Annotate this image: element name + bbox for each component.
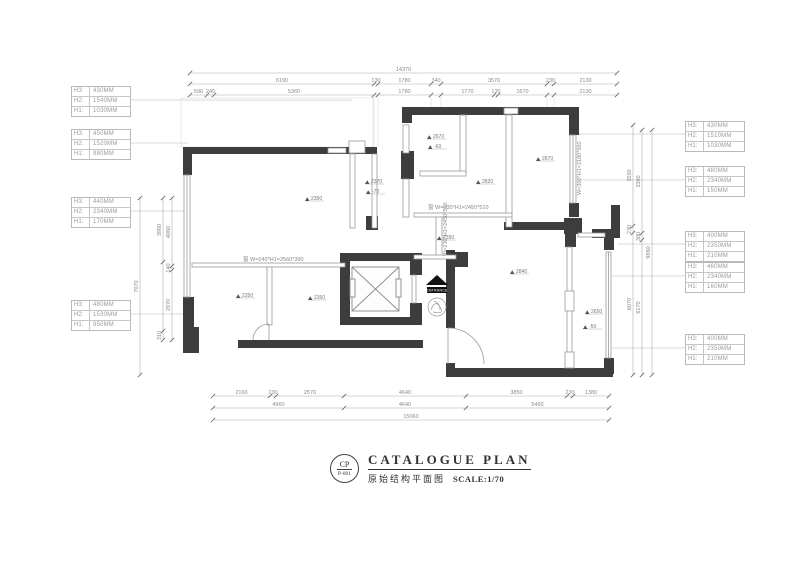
dim-label: 3850 — [510, 390, 522, 396]
dim-label: 130 — [371, 78, 380, 84]
height-row: H3:440MM — [72, 198, 130, 208]
spot-height-marker: 2840 — [510, 269, 529, 275]
window-spec-2: 窗 W=240*H1=2560*390 — [243, 255, 304, 263]
dim-label: 1780 — [398, 78, 410, 84]
height-row: H3:450MM — [72, 130, 130, 140]
dim-chain: 14370 — [188, 67, 619, 75]
spot-height-value: -60 — [434, 144, 441, 150]
spot-height-value: 2370 — [371, 179, 382, 185]
dim-label: 4960 — [272, 402, 284, 408]
spot-height-marker: -50 — [583, 324, 602, 330]
height-row: H1:1030MM — [72, 107, 130, 116]
dim-label: 15060 — [403, 414, 418, 420]
drawing-title-cn: 原始结构平面图 — [368, 472, 445, 485]
dim-label: 590 — [194, 89, 203, 95]
spot-height-marker: -70 — [366, 189, 385, 195]
dim-label: 3570 — [488, 78, 500, 84]
height-table-left-2: H3:450MM H2:1520MM H1:980MM — [71, 129, 131, 160]
dim-label: 230 — [565, 390, 574, 396]
height-table-left-4: H3:480MM H2:1530MM H1:950MM — [71, 300, 131, 331]
height-row: H3:400MM — [686, 335, 744, 345]
height-row: H2:2340MM — [686, 177, 744, 187]
height-row: H2:1520MM — [72, 140, 130, 150]
dim-label: 140 — [166, 263, 172, 272]
entrance-label: ENTRANCE — [426, 289, 447, 293]
height-row: H3:400MM — [686, 232, 744, 242]
dim-label: 1380 — [585, 390, 597, 396]
dim-label: 4060 — [166, 226, 172, 238]
title-block: CP P-001 CATALOGUE PLAN 原始结构平面图 SCALE:1/… — [330, 452, 531, 485]
dim-chain: 40601402870 — [166, 196, 174, 342]
drawing-scale: SCALE:1/70 — [453, 474, 504, 484]
spot-height-value: -50 — [589, 324, 596, 330]
dim-label: 2160 — [235, 390, 247, 396]
dim-label: 6190 — [276, 78, 288, 84]
height-row: H1:160MM — [686, 283, 744, 292]
height-row: H1:210MM — [686, 252, 744, 261]
drawing-canvas: ENTRANCE 窗 W=230*H1=2450*510 窗 W=240*H1=… — [0, 0, 800, 565]
spot-height-marker: 2350 — [236, 293, 255, 299]
spot-height-value: 2670 — [542, 156, 553, 162]
spot-height-marker: 2350 — [305, 196, 324, 202]
dim-label: 3960 — [157, 224, 163, 236]
entrance-arrow-icon — [426, 275, 448, 285]
dim-label: 300 — [636, 232, 642, 241]
dim-chain: 21602302570464038502301380 — [211, 390, 611, 398]
dim-chain: 35502306070 — [627, 123, 635, 377]
spot-height-value: 2820 — [482, 179, 493, 185]
entrance-marker: ENTRANCE — [426, 275, 448, 316]
spot-height-marker: 2820 — [476, 179, 495, 185]
height-table-left-1: H3:430MM H2:1540MM H1:1030MM — [71, 86, 131, 117]
height-row: H2:1540MM — [72, 97, 130, 107]
dim-label: 230 — [268, 390, 277, 396]
dim-label: 5360 — [288, 89, 300, 95]
spot-height-value: 2650 — [591, 309, 602, 315]
dim-label: 1670 — [516, 89, 528, 95]
stamp-code: CP — [337, 460, 353, 470]
spot-height-marker: 2650 — [585, 309, 604, 315]
dim-label: 240 — [206, 89, 215, 95]
spot-height-value: 2350 — [443, 235, 454, 241]
dim-label: 2570 — [304, 390, 316, 396]
height-row: H3:480MM — [72, 301, 130, 311]
spot-height-value: -70 — [372, 189, 379, 195]
dim-label: 4640 — [399, 390, 411, 396]
height-row: H2:2350MM — [686, 242, 744, 252]
height-row: H3:480MM — [686, 167, 744, 177]
height-row: H1:980MM — [72, 150, 130, 159]
spot-height-value: 2350 — [314, 295, 325, 301]
dim-label: 5460 — [531, 402, 543, 408]
dim-label: 7070 — [134, 280, 140, 292]
dim-label: 340 — [431, 78, 440, 84]
height-table-right-4: H3:460MM H2:2340MM H1:160MM — [685, 262, 745, 293]
dim-chain: 6190130178034035702302130 — [188, 78, 619, 86]
dim-label: 310 — [157, 331, 163, 340]
height-row: H1:150MM — [686, 187, 744, 196]
height-row: H2:1530MM — [72, 311, 130, 321]
title-text-group: CATALOGUE PLAN 原始结构平面图 SCALE:1/70 — [368, 452, 531, 485]
height-row: H1:210MM — [686, 355, 744, 364]
spot-heights-layer: 23502370-702670-602670282023502350235028… — [236, 134, 604, 330]
walls — [183, 107, 620, 377]
dim-label: 230 — [546, 78, 555, 84]
dim-label: 2870 — [166, 299, 172, 311]
height-row: H1:950MM — [72, 321, 130, 330]
dim-label: 130 — [491, 89, 500, 95]
dim-chain: 496046405460 — [211, 402, 611, 410]
spot-height-marker: 2670 — [427, 134, 446, 140]
drawing-number-stamp: CP P-001 — [330, 454, 359, 483]
dim-label: 14370 — [396, 67, 411, 73]
window-spec-3: W=300*H1=2180*560 — [577, 141, 583, 195]
dim-chain: 9860 — [646, 128, 654, 377]
dim-label: 1780 — [398, 89, 410, 95]
window-spec-4: W=230*H1=2450*510 — [443, 202, 449, 256]
dim-label: 2130 — [579, 78, 591, 84]
dim-label: 2130 — [579, 89, 591, 95]
height-table-left-3: H3:440MM H2:2340MM H1:170MM — [71, 197, 131, 228]
height-row: H3:430MM — [686, 122, 744, 132]
dim-chain: 15060 — [211, 414, 611, 422]
dim-label: 230 — [627, 225, 633, 234]
spot-height-marker: 2670 — [536, 156, 555, 162]
spot-height-value: 2350 — [242, 293, 253, 299]
spot-height-value: 2670 — [433, 134, 444, 140]
height-row: H2:2340MM — [686, 273, 744, 283]
dim-chain: 33803006170 — [636, 128, 644, 377]
height-table-right-2: H3:480MM H2:2340MM H1:150MM — [685, 166, 745, 197]
spot-height-marker: -60 — [428, 144, 447, 150]
slab-outline — [181, 96, 554, 147]
height-table-right-1: H3:430MM H2:1510MM H1:1030MM — [685, 121, 745, 152]
dim-label: 3550 — [627, 169, 633, 181]
height-row: H2:1510MM — [686, 132, 744, 142]
dim-chain: 7070 — [134, 196, 142, 377]
dim-label: 9860 — [646, 246, 652, 258]
dim-chain: 59024053601780177013016702130 — [188, 89, 619, 97]
height-row: H1:1030MM — [686, 142, 744, 151]
height-table-right-5: H3:400MM H2:2350MM H1:210MM — [685, 334, 745, 365]
title-divider — [368, 469, 531, 470]
window-spec-1: 窗 W=230*H1=2450*510 — [428, 203, 489, 211]
height-row: H1:170MM — [72, 218, 130, 227]
dim-label: 6170 — [636, 301, 642, 313]
height-table-right-3: H3:400MM H2:2350MM H1:210MM — [685, 231, 745, 262]
elevator — [350, 267, 401, 311]
entrance-flourish-icon — [428, 298, 446, 316]
spot-height-value: 2350 — [311, 196, 322, 202]
height-row: H2:2340MM — [72, 208, 130, 218]
spot-height-marker: 2370 — [365, 179, 384, 185]
dim-label: 3380 — [636, 175, 642, 187]
dim-label: 1770 — [461, 89, 473, 95]
spot-height-marker: 2350 — [308, 295, 327, 301]
dim-label: 6070 — [627, 298, 633, 310]
dim-label: 4640 — [399, 402, 411, 408]
spot-height-value: 2840 — [516, 269, 527, 275]
height-row: H3:430MM — [72, 87, 130, 97]
height-row: H2:2350MM — [686, 345, 744, 355]
stamp-number: P-001 — [338, 470, 351, 478]
drawing-title-en: CATALOGUE PLAN — [368, 452, 531, 468]
height-row: H3:460MM — [686, 263, 744, 273]
dim-chain: 3960310 — [157, 196, 165, 342]
